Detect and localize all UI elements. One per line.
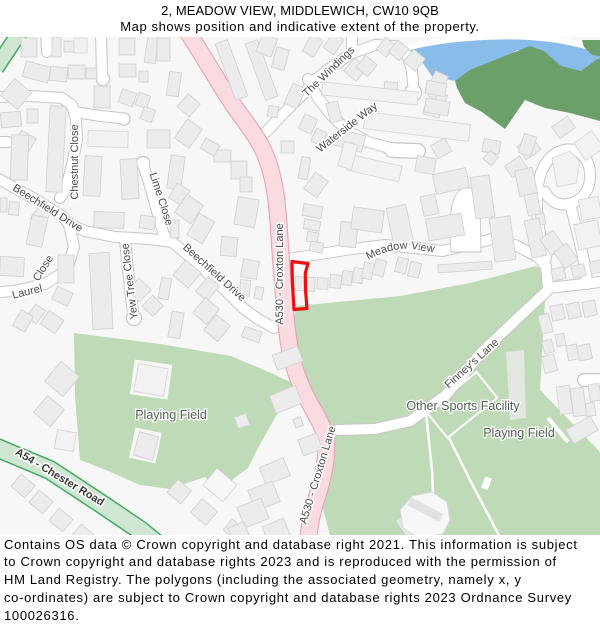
svg-text:Chestnut Close: Chestnut Close (69, 124, 81, 199)
svg-text:Playing Field: Playing Field (483, 426, 555, 440)
svg-text:A530 - Croxton Lane: A530 - Croxton Lane (274, 223, 286, 325)
svg-text:Other Sports Facility: Other Sports Facility (406, 399, 520, 413)
svg-text:Playing Field: Playing Field (135, 408, 207, 422)
